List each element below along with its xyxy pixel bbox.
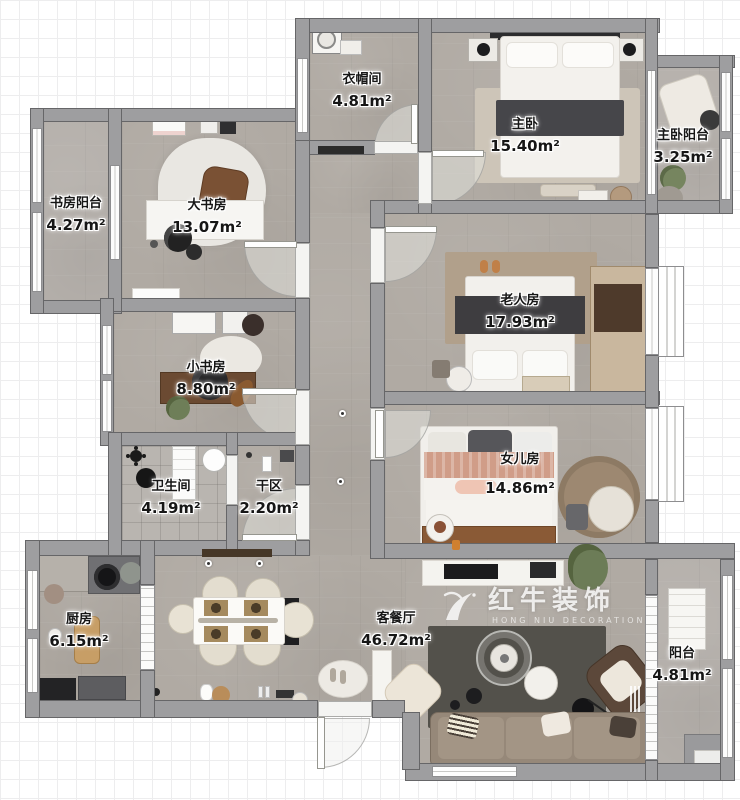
door-opening [295,243,310,298]
counter-item [280,450,294,462]
wall-segment [645,214,659,268]
room-name: 干区 [209,477,329,497]
room-name: 主卧 [465,115,585,135]
room-name: 小书房 [146,358,266,378]
table-knob [500,654,509,663]
shoe [265,686,270,698]
wall-segment [226,432,238,455]
placemat [244,626,268,642]
window [645,268,659,355]
black-pot [94,564,120,590]
room-area: 4.81m² [302,90,422,112]
room-area: 15.40m² [465,135,585,157]
sofa-pillow-dark [609,715,638,738]
room-label-kitchen: 厨房 6.15m² [19,610,139,652]
bookshelf [172,312,216,334]
door-opening [418,152,432,204]
door-leaf-entry [317,717,325,769]
room-area: 6.15m² [19,630,139,652]
sliding-door-kitchen [140,585,155,670]
bay-window [658,406,684,502]
window [645,408,659,500]
lamp-left [477,43,490,56]
ceiling-fan [130,450,142,462]
utensil-set [276,690,294,698]
gray-stool [566,504,588,530]
pillow [562,42,614,68]
room-area: 3.25m² [623,146,740,168]
clay-jar [44,584,64,604]
spotlight [339,410,346,417]
wall-segment [370,543,735,559]
room-name: 阳台 [622,644,740,664]
small-table [432,360,450,378]
appliance [78,676,126,700]
wall-segment [370,200,385,228]
deco-ball-black [466,688,482,704]
room-label-dry-area: 干区 2.20m² [209,477,329,519]
side-table-white [524,666,558,700]
slipper [480,260,488,273]
door-leaf-daughter [375,410,384,458]
room-label-elder-room: 老人房 17.93m² [460,291,580,333]
window [721,72,731,132]
room-area: 17.93m² [460,311,580,333]
shoe [258,686,263,698]
wall-segment [645,760,658,781]
wall-segment [370,283,385,408]
room-label-master-balcony: 主卧阳台 3.25m² [623,126,740,168]
room-area: 8.80m² [146,378,266,400]
deco-ball [150,240,158,248]
pouf [588,486,634,532]
counter-item [262,456,272,472]
cabinet-box [340,40,362,55]
room-label-master-bedroom: 主卧 15.40m² [465,115,585,157]
wall-segment [100,432,310,446]
lamp-right [623,43,636,56]
pendant-bar [202,549,272,557]
vase [434,521,446,533]
dark-pot [242,314,264,336]
pendant-light [256,560,263,567]
bay-window [658,266,684,357]
room-label-small-study: 小书房 8.80m² [146,358,266,400]
wall-segment [295,540,310,556]
window [102,380,112,432]
slipper [340,670,346,684]
soundbar [530,562,556,578]
room-area: 2.20m² [209,497,329,519]
wardrobe-dark-section [594,284,642,332]
placemat [204,626,228,642]
small-dot [246,452,252,458]
room-label-living-dining: 客餐厅 46.72m² [336,609,456,651]
wall-segment [108,298,310,312]
spotlight [337,478,344,485]
placemat [204,600,228,616]
room-name: 客餐厅 [336,609,456,629]
wall-segment [295,140,310,243]
floor-plan: 衣帽间 4.81m² 主卧 15.40m² 主卧阳台 3.25m² 书房阳台 4… [0,0,740,800]
deco-ball [186,244,202,260]
pillow [472,350,518,380]
pendant-light [205,560,212,567]
deco-ball-black [450,700,460,710]
wall-segment [140,540,155,585]
room-area: 46.72m² [336,629,456,651]
door-leaf-elder [385,226,437,233]
slipper [492,260,500,273]
wall-segment [25,700,318,718]
placemat [244,600,268,616]
window [32,128,42,203]
gray-pot [120,562,142,584]
plant-large [568,544,608,590]
room-area: 13.07m² [147,216,267,238]
black-cabinet [40,678,76,700]
pillow [506,42,558,68]
wall-segment [645,500,659,543]
window [102,325,112,375]
room-label-study-balcony: 书房阳台 4.27m² [16,194,136,236]
wall-segment [370,460,385,559]
white-figure [200,684,213,701]
cloak-mat [318,146,364,154]
door-leaf-dry-area [242,534,297,541]
room-label-big-study: 大书房 13.07m² [147,196,267,238]
room-name: 厨房 [19,610,139,630]
door-opening [370,228,385,283]
wall-segment [295,18,660,33]
wall-segment [140,670,155,718]
room-name: 女儿房 [460,450,580,470]
door-swing-entry [320,718,370,768]
tv [444,564,498,579]
room-label-daughter-room: 女儿房 14.86m² [460,450,580,499]
room-name: 老人房 [460,291,580,311]
wall-segment [402,712,420,770]
brand-subtitle: HONG NIU DECORATION [492,616,680,625]
brand-watermark: 红牛装饰 HONG NIU DECORATION [440,586,680,625]
wall-segment [370,391,660,405]
room-name: 书房阳台 [16,194,136,214]
room-area: 14.86m² [460,477,580,499]
brand-name: 红牛装饰 [488,586,680,616]
room-area: 4.27m² [16,214,136,236]
wall-segment [645,355,659,408]
room-name: 主卧阳台 [623,126,740,146]
room-name: 大书房 [147,196,267,216]
window [432,766,517,777]
room-label-balcony: 阳台 4.81m² [622,644,740,686]
wall-segment [372,700,405,718]
wall-segment [30,108,310,122]
door-opening [295,390,310,445]
door-opening [318,701,372,717]
slipper [330,668,336,682]
room-name: 衣帽间 [302,70,422,90]
door-leaf-big-study [244,241,297,248]
room-area: 4.81m² [622,664,740,686]
wall-segment [295,298,310,390]
candle [452,540,460,550]
table-runner-utensil [198,618,278,623]
room-label-cloakroom: 衣帽间 4.81m² [302,70,422,112]
basin-round [202,448,226,472]
